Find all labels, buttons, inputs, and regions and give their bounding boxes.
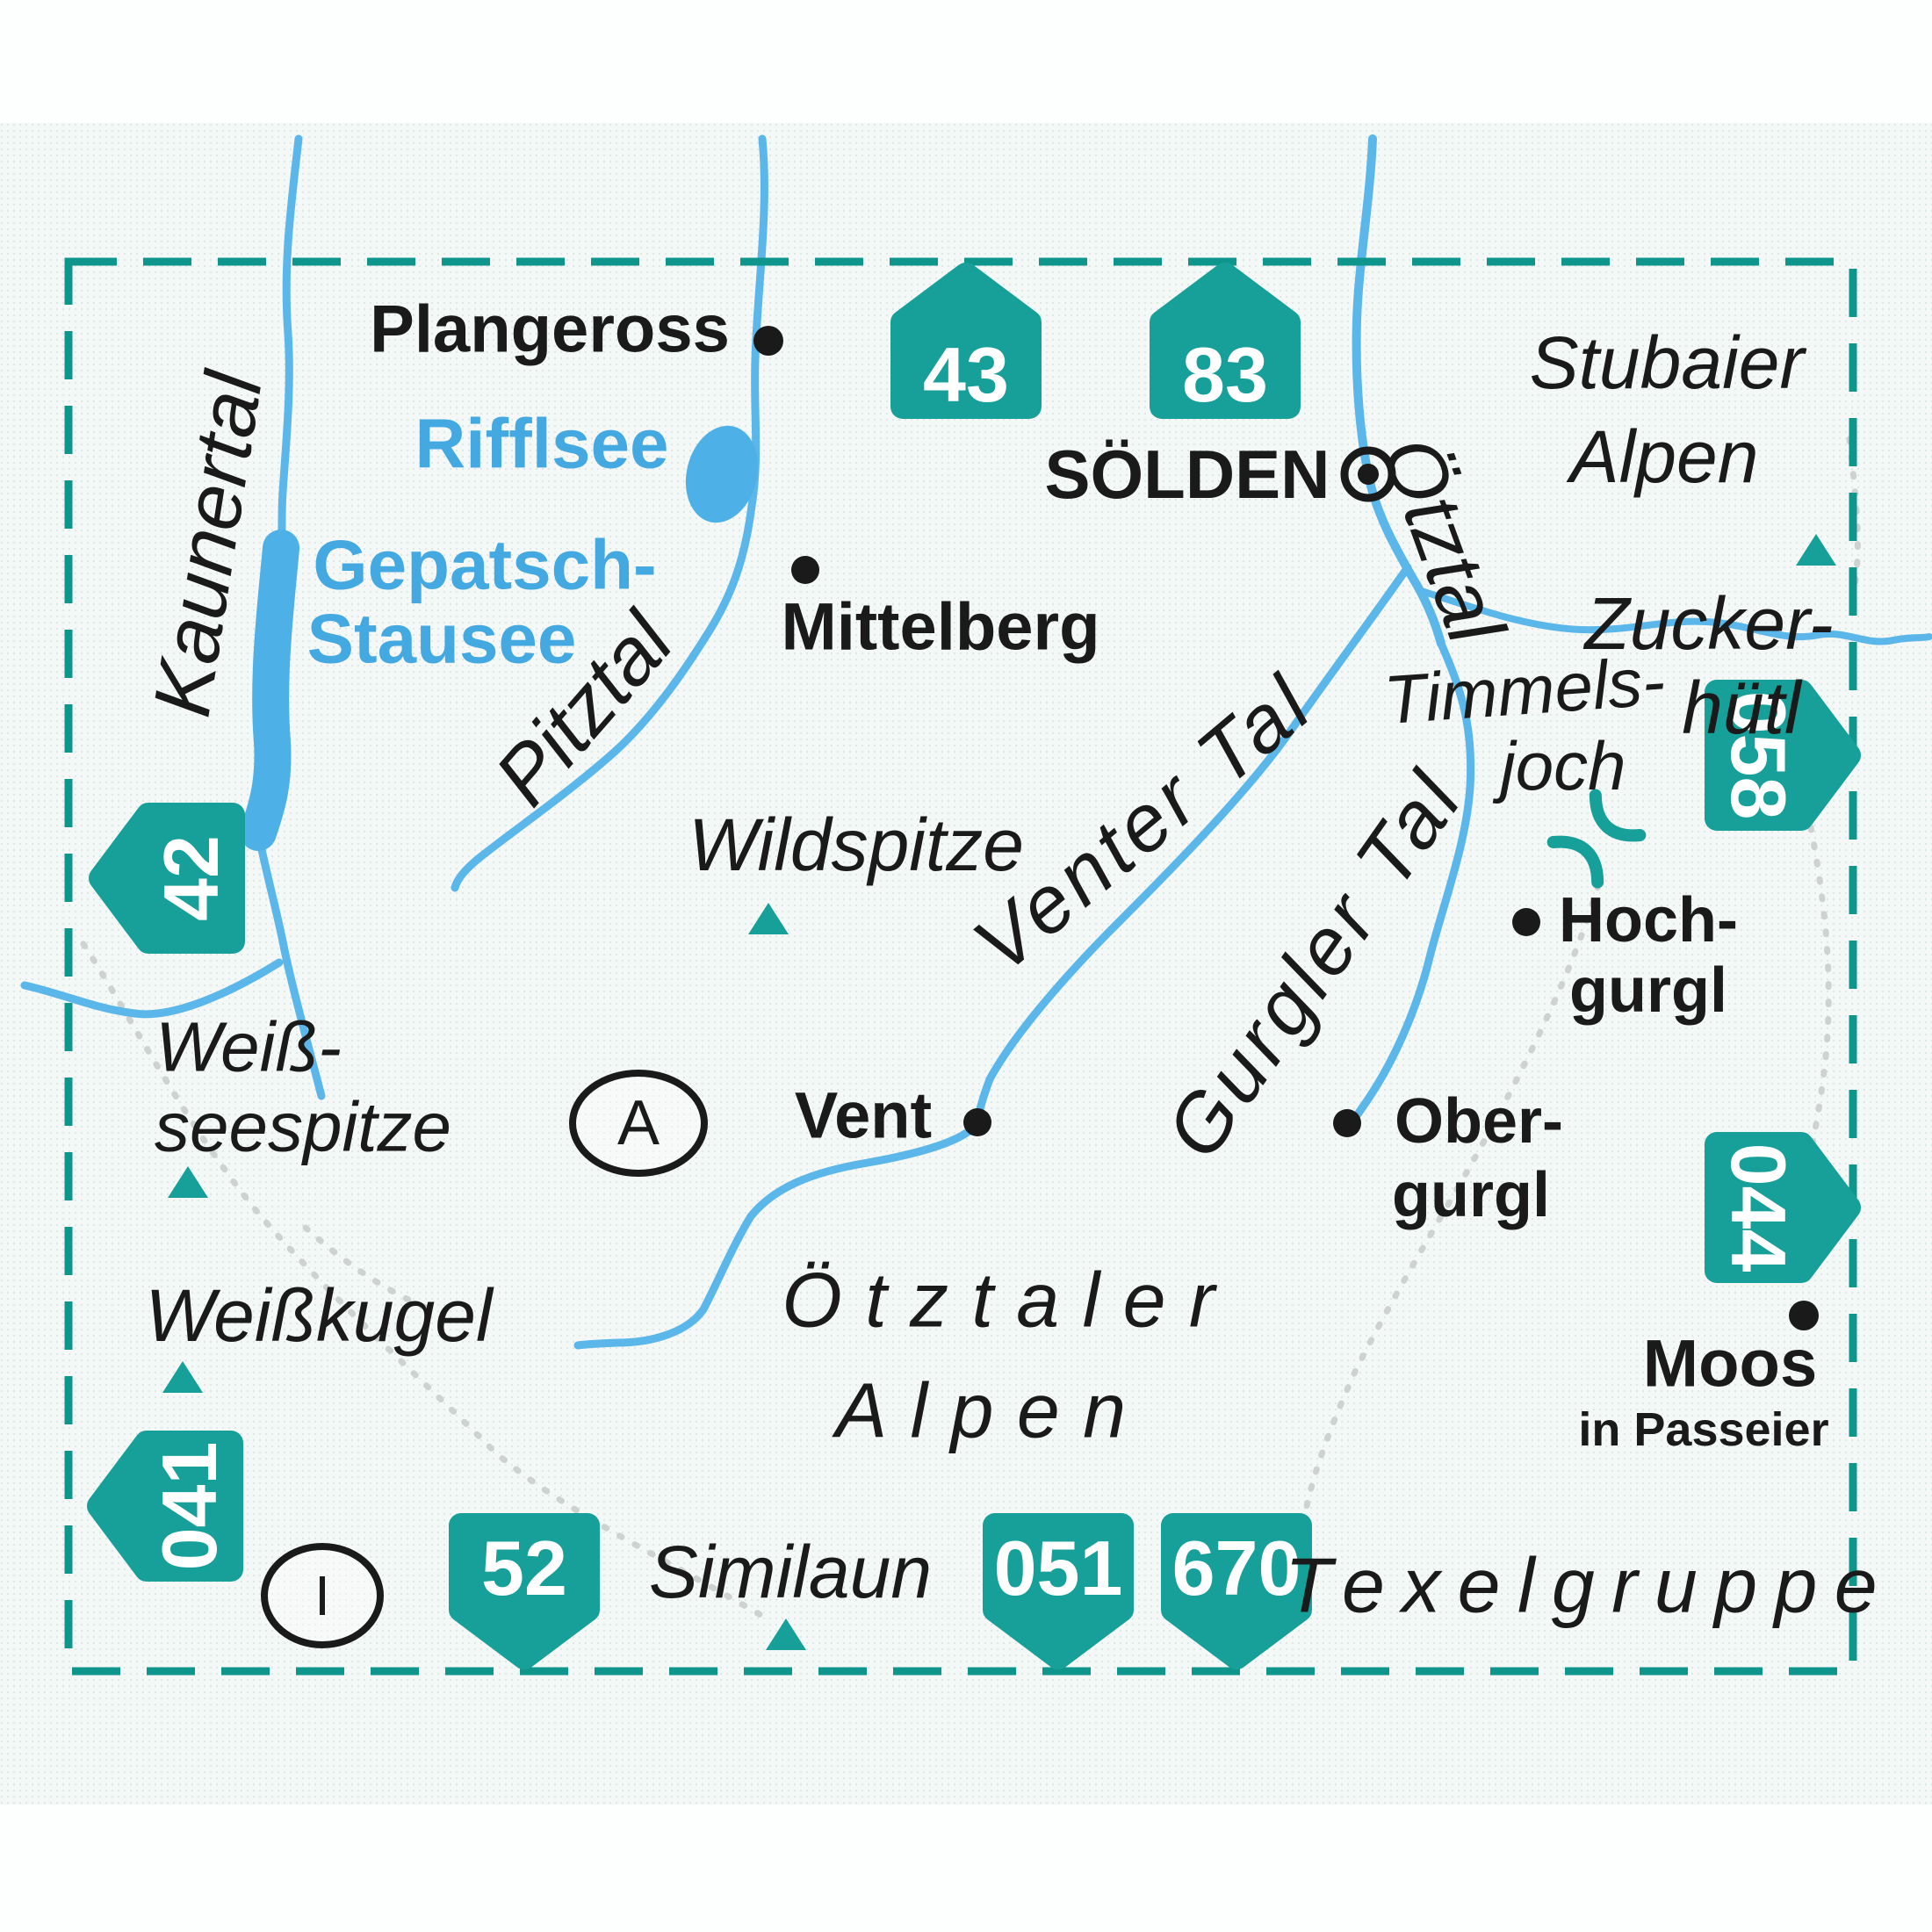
town-label-hochgurgl-1: Hoch- — [1559, 885, 1738, 955]
badge-number: 42 — [148, 835, 234, 921]
town-label-moos: Moos — [1643, 1327, 1817, 1402]
label-oetztaler-alpen-2: Alpen — [831, 1367, 1149, 1454]
map-canvas: 43830580444204152051670 AI PlangerossSÖL… — [0, 0, 1932, 1932]
badge-number: 52 — [481, 1525, 567, 1611]
label-stubaier-1: Stubaier — [1530, 321, 1807, 404]
water-label-rifflsee: Rifflsee — [415, 405, 669, 483]
town-label-vent: Vent — [795, 1079, 932, 1152]
town-label-mittelberg: Mittelberg — [781, 590, 1099, 665]
town-label-obergurgl-2: gurgl — [1392, 1160, 1550, 1230]
badge-number: 43 — [923, 331, 1009, 418]
kompass-overview-map: 43830580444204152051670 AI PlangerossSÖL… — [0, 0, 1932, 1932]
oval-letter-i: I — [314, 1564, 330, 1627]
label-weissseespitze-2: seespitze — [155, 1088, 451, 1166]
lake-gepatsch-stausee — [258, 548, 281, 833]
label-similaun: Similaun — [649, 1531, 932, 1613]
label-oetztaler-alpen-1: Ötztaler — [782, 1257, 1237, 1344]
label-weisskugel: Weißkugel — [145, 1274, 494, 1357]
label-weissseespitze-1: Weiß- — [155, 1008, 342, 1086]
label-texelgruppe: Texelgruppe — [1285, 1542, 1894, 1629]
town-dot-mittelberg — [791, 556, 819, 584]
town-label-hochgurgl-2: gurgl — [1569, 955, 1727, 1026]
water-label-gepatsch-1: Gepatsch- — [313, 526, 656, 604]
label-wildspitze: Wildspitze — [688, 804, 1024, 886]
town-dot-obergurgl-1 — [1333, 1109, 1361, 1137]
badge-number: 044 — [1715, 1143, 1802, 1272]
oval-letter-a: A — [617, 1088, 660, 1158]
town-label-plangeross: Plangeross — [370, 292, 730, 367]
badge-number: 83 — [1182, 331, 1268, 418]
town-label-soelden: SÖLDEN — [1044, 436, 1330, 513]
water-label-gepatsch-2: Stausee — [307, 600, 577, 678]
town-label-moos-sub: in Passeier — [1578, 1403, 1828, 1456]
label-stubaier-2: Alpen — [1566, 415, 1759, 498]
label-timmelsjoch-2: joch — [1492, 727, 1626, 804]
town-label-obergurgl-1: Ober- — [1395, 1086, 1563, 1157]
town-dot-vent — [963, 1108, 991, 1136]
badge-number: 041 — [146, 1442, 233, 1571]
town-dot-hochgurgl-1 — [1512, 908, 1540, 936]
badge-number: 670 — [1172, 1525, 1301, 1611]
town-dot-plangeross — [753, 326, 783, 356]
label-zuckerhuetl-2: hütl — [1682, 667, 1803, 749]
badge-number: 051 — [994, 1525, 1123, 1611]
